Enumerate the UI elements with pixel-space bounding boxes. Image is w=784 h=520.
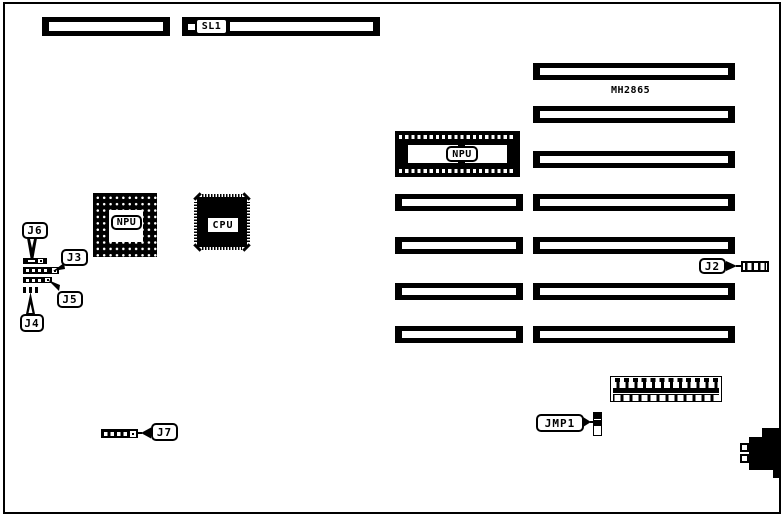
sl1-label-text: SL1	[202, 21, 222, 32]
slot-stripe	[230, 22, 373, 31]
power-connector-pins	[613, 378, 719, 388]
jmp1-pin-closed	[594, 420, 601, 426]
j7-label: J7	[151, 423, 178, 441]
npu-socket-pins-bottom	[399, 169, 516, 173]
j7-pointer	[138, 427, 152, 439]
slot-stripe	[540, 331, 728, 338]
j6-label: J6	[22, 222, 48, 239]
j5-connector-pins	[26, 279, 44, 282]
slot-stripe	[402, 288, 516, 295]
j5-pointer	[48, 280, 60, 292]
j6-label-text: J6	[27, 224, 42, 237]
slot-sl1: SL1	[182, 17, 380, 36]
j7-connector-pins	[104, 432, 128, 436]
expansion-slot-r2	[533, 106, 735, 123]
j2-connector	[741, 261, 769, 272]
keyboard-connector-body	[749, 437, 775, 470]
npu-chip-label-text: NPU	[117, 217, 137, 228]
motherboard-diagram: SL1 MH2865 NPU NPU	[0, 0, 784, 520]
slot-stripe	[540, 199, 728, 206]
keyboard-connector-pin	[740, 454, 749, 463]
slot-stripe	[49, 22, 163, 31]
slot-top-left	[42, 17, 170, 36]
expansion-slot-l4	[395, 326, 523, 343]
expansion-slot-r7	[533, 326, 735, 343]
expansion-slot-l3	[395, 283, 523, 300]
expansion-slot-r3	[533, 151, 735, 168]
j4-label-text: J4	[24, 317, 39, 330]
slot-stripe	[402, 331, 516, 338]
j3-label-text: J3	[67, 251, 82, 264]
jmp1-pin-closed	[594, 413, 601, 419]
j2-connector-pins	[745, 263, 766, 270]
expansion-slot-l1	[395, 194, 523, 211]
j6-pointer	[27, 238, 38, 259]
j3-connector-pins	[26, 269, 50, 272]
cpu-pins-bottom	[202, 247, 242, 250]
board-model-label: MH2865	[611, 85, 650, 96]
j7-connector-dot	[132, 433, 134, 435]
cpu-chip-label: CPU	[208, 218, 238, 232]
cpu-pins-right	[247, 202, 250, 242]
npu-socket-label: NPU	[446, 146, 478, 162]
j2-pointer	[726, 260, 742, 272]
power-connector	[610, 376, 722, 402]
j6-connector-dot	[40, 260, 42, 262]
cpu-pins-top	[202, 194, 242, 197]
jmp1-label-text: JMP1	[545, 417, 576, 430]
slot-stripe	[402, 199, 516, 206]
j2-label-text: J2	[705, 260, 720, 273]
npu-socket: NPU	[395, 131, 520, 177]
slot-stripe	[540, 288, 728, 295]
j5-label: J5	[57, 291, 83, 308]
npu-socket-pins-top	[399, 135, 516, 139]
cpu-pins-left	[194, 202, 197, 242]
slot-stripe	[540, 156, 728, 163]
j7-connector	[101, 429, 138, 438]
npu-chip-label: NPU	[111, 215, 142, 230]
j6-connector-mark	[28, 260, 35, 262]
slot-stripe	[540, 68, 728, 75]
slot-stripe	[540, 242, 728, 249]
npu-chip: NPU	[93, 193, 157, 257]
expansion-slot-l2	[395, 237, 523, 254]
keyboard-connector-pin	[740, 443, 749, 452]
slot-stripe	[540, 111, 728, 118]
j2-label: J2	[699, 258, 726, 274]
power-connector-sockets	[613, 394, 719, 402]
j4-label: J4	[20, 314, 44, 332]
cpu-chip-label-text: CPU	[212, 220, 233, 231]
expansion-slot-r6	[533, 283, 735, 300]
j7-label-text: J7	[157, 426, 172, 439]
sl1-pin-mark	[188, 24, 195, 30]
j5-label-text: J5	[62, 293, 77, 306]
j3-label: J3	[61, 249, 88, 266]
jmp1-pointer	[583, 417, 595, 428]
expansion-slot-r1	[533, 63, 735, 80]
npu-socket-label-text: NPU	[452, 149, 472, 160]
j6-connector-end	[38, 259, 43, 263]
power-connector-bar	[613, 388, 719, 393]
j4-pointer	[26, 292, 36, 315]
slot-stripe	[402, 242, 516, 249]
jmp1-label: JMP1	[536, 414, 584, 432]
sl1-label: SL1	[196, 19, 227, 34]
j7-connector-end	[130, 431, 136, 437]
expansion-slot-r5	[533, 237, 735, 254]
expansion-slot-r4	[533, 194, 735, 211]
